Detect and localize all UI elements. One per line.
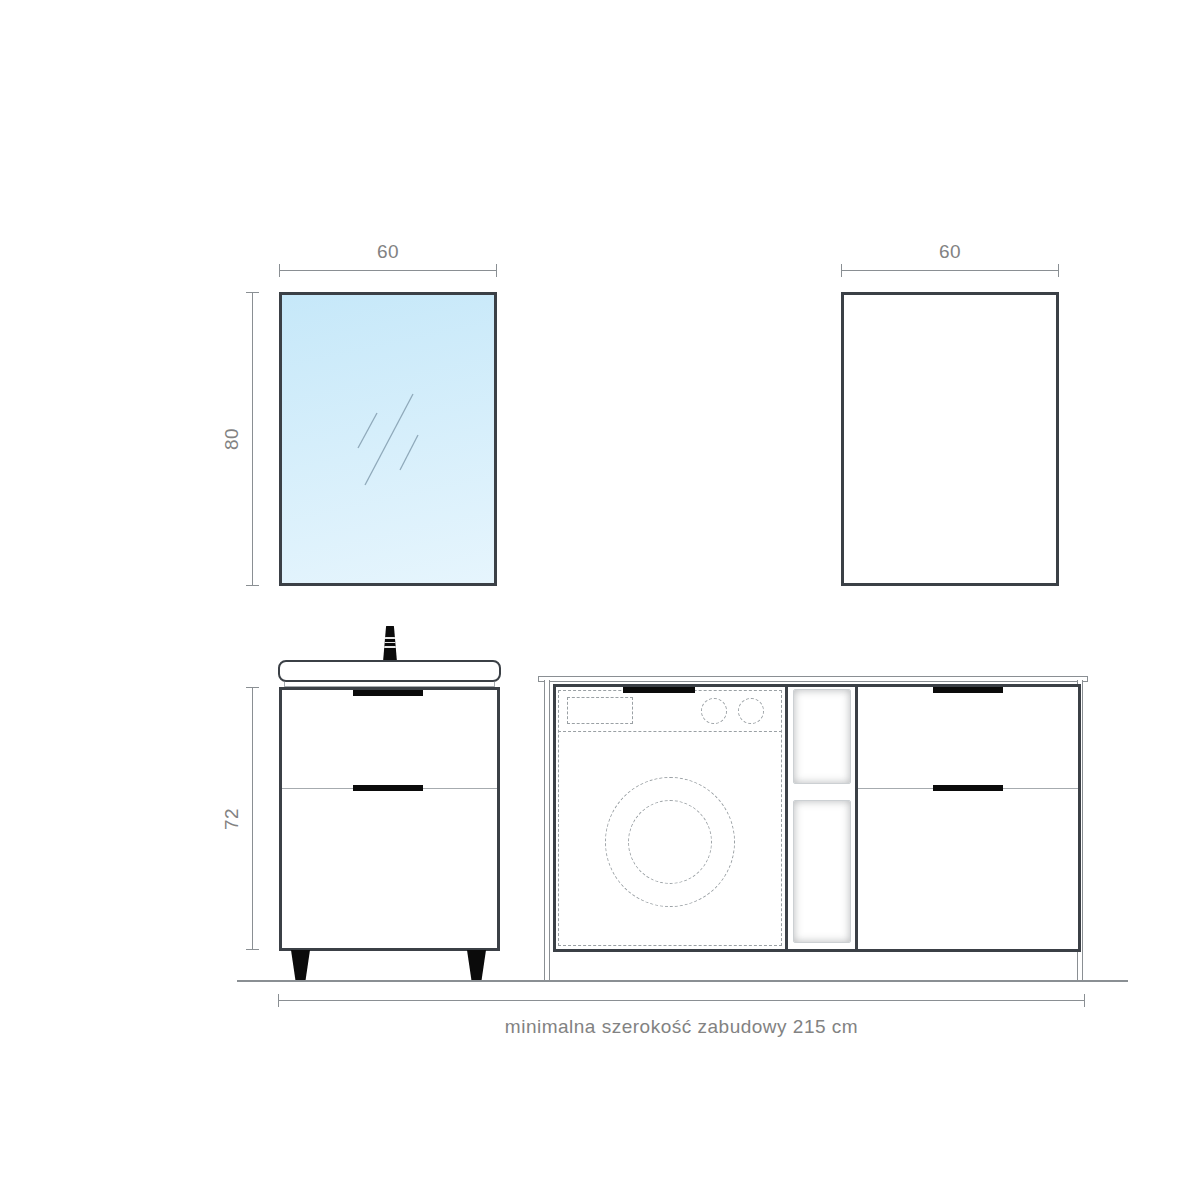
- drawer-handle-top: [933, 687, 1003, 693]
- laundry-cabinet-body: [553, 684, 1081, 952]
- faucet-icon: [383, 626, 397, 662]
- mirror: [279, 292, 497, 586]
- laundry-side-panel-left: [544, 680, 550, 982]
- dimension-line: [841, 270, 1059, 271]
- dimension-tick-top: [246, 687, 259, 688]
- dimension-line: [252, 292, 253, 586]
- dimension-tick-bottom: [246, 585, 259, 586]
- dimension-line: [252, 687, 253, 950]
- open-shelf-bottom: [793, 800, 851, 943]
- dimension-line: [278, 1000, 1085, 1001]
- partition-right: [855, 687, 858, 949]
- partition-left: [785, 687, 788, 949]
- wall-cabinet: [841, 292, 1059, 586]
- dimension-tick-top: [246, 292, 259, 293]
- vanity-leg-left: [291, 950, 310, 981]
- faucet-stripes: [383, 634, 397, 649]
- floor-line: [237, 980, 1128, 982]
- washing-machine-drum-inner: [628, 800, 712, 884]
- washbasin: [278, 660, 501, 682]
- mirror-height-label: 80: [221, 428, 243, 450]
- total-width-dimension: minimalna szerokość zabudowy 215 cm: [278, 994, 1085, 1007]
- drawing-canvas: 60 80 60 72: [0, 0, 1200, 1200]
- washbasin-rim: [284, 682, 495, 687]
- dimension-tick-right: [1058, 264, 1059, 277]
- washing-machine-door-handle: [623, 687, 695, 693]
- dimension-tick-right: [496, 264, 497, 277]
- washing-machine-control-panel-line: [558, 731, 782, 732]
- open-shelf-top: [793, 689, 851, 784]
- laundry-countertop: [538, 676, 1088, 682]
- washing-machine-knob-right: [738, 698, 764, 724]
- mirror-height-dimension: 80: [246, 292, 259, 586]
- vanity-height-dimension: 72: [246, 687, 259, 950]
- washing-machine-knob-left: [701, 698, 727, 724]
- vanity-cabinet: [279, 687, 500, 951]
- washing-machine-detergent-drawer: [567, 697, 633, 724]
- mirror-width-dimension: 60: [279, 264, 497, 277]
- faucet-body: [383, 626, 397, 662]
- dimension-tick-right: [1084, 994, 1085, 1007]
- vanity-drawer-handle-bottom: [353, 785, 423, 791]
- vanity-drawer-handle-top: [353, 690, 423, 696]
- wall-cabinet-width-label: 60: [841, 241, 1059, 263]
- vanity-leg-right: [467, 950, 486, 981]
- dimension-tick-left: [841, 264, 842, 277]
- wall-cabinet-width-dimension: 60: [841, 264, 1059, 277]
- mirror-width-label: 60: [279, 241, 497, 263]
- dimension-line: [279, 270, 497, 271]
- total-width-note: minimalna szerokość zabudowy 215 cm: [278, 1016, 1085, 1038]
- dimension-tick-left: [279, 264, 280, 277]
- dimension-tick-bottom: [246, 949, 259, 950]
- vanity-height-label: 72: [221, 807, 243, 829]
- drawer-handle-bottom: [933, 785, 1003, 791]
- dimension-tick-left: [278, 994, 279, 1007]
- mirror-glare-icon: [282, 295, 494, 583]
